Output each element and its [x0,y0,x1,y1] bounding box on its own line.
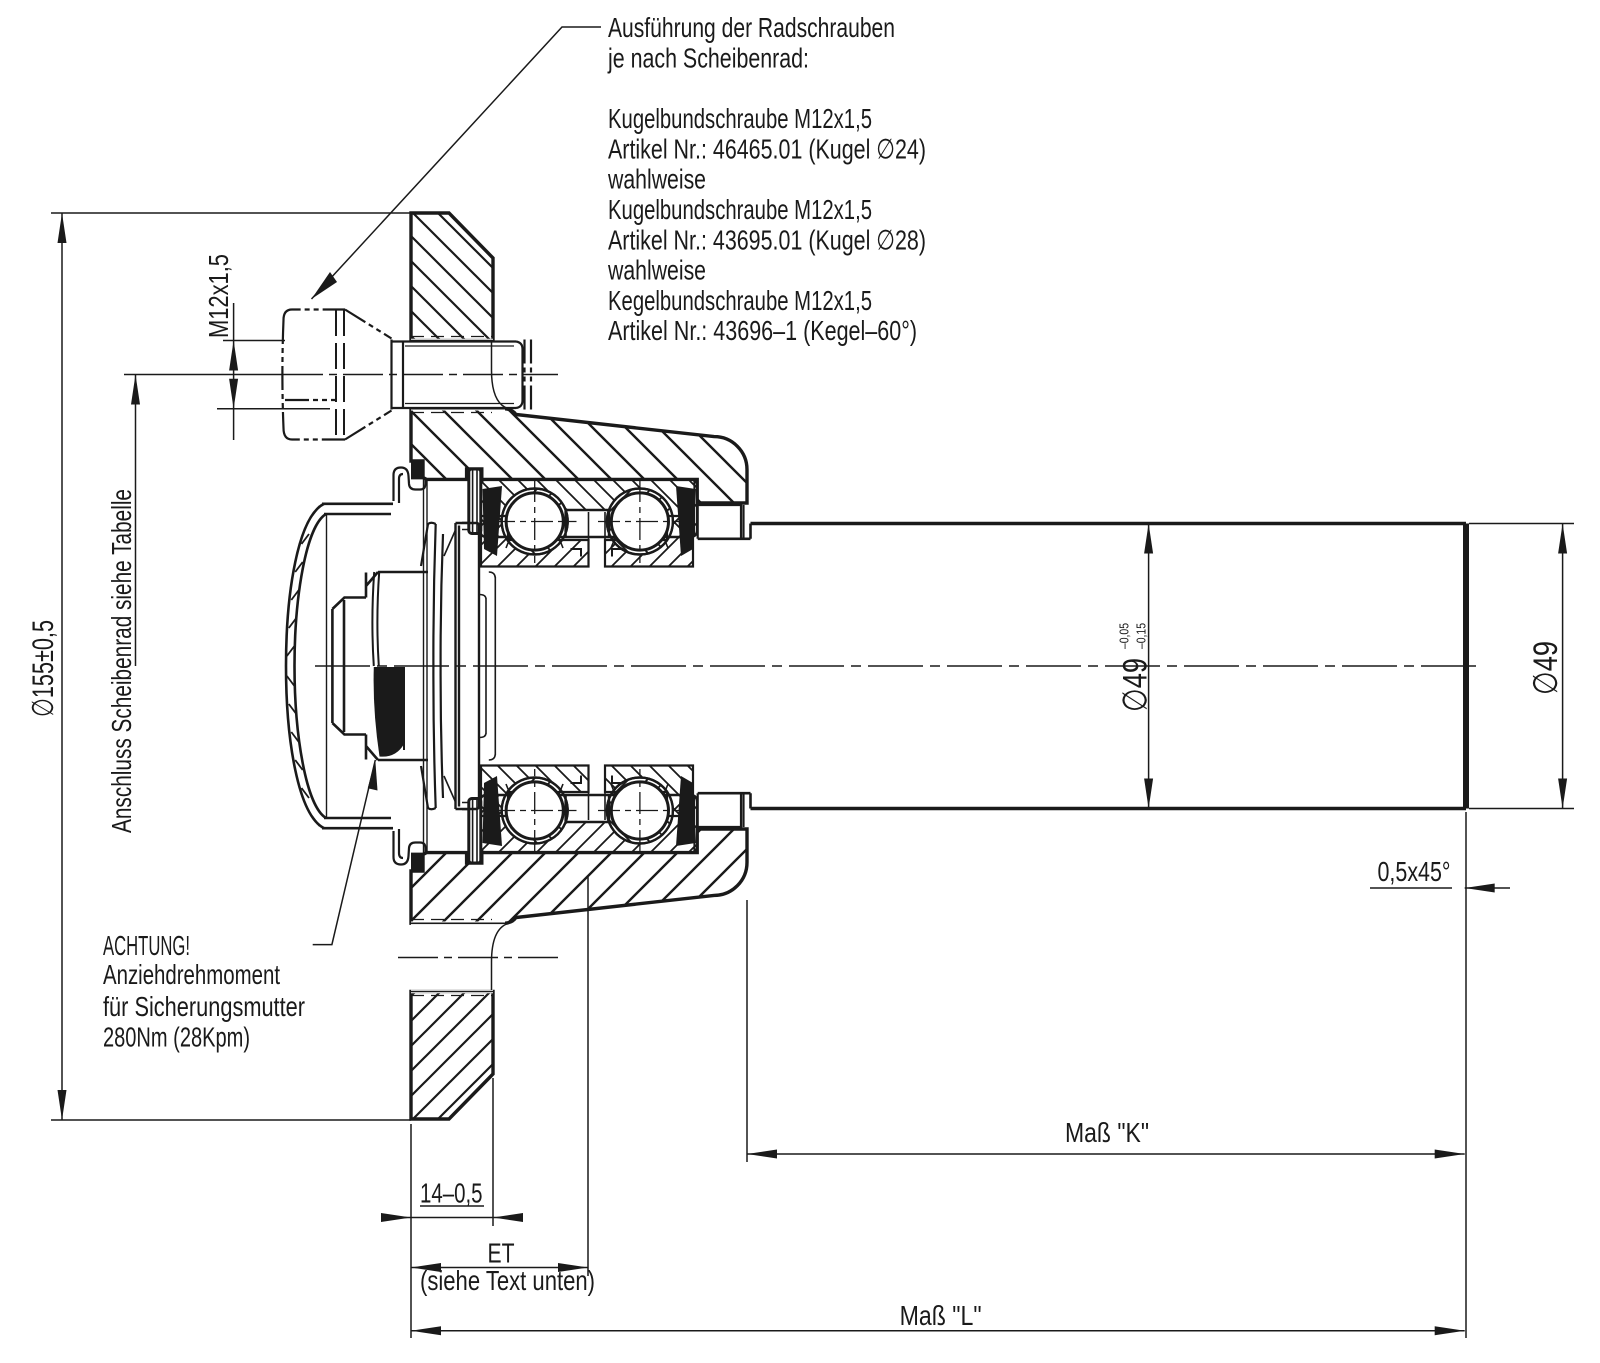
svg-text:Kegelbundschraube M12x1,5: Kegelbundschraube M12x1,5 [608,285,872,316]
svg-text:∅155±0,5: ∅155±0,5 [27,620,60,717]
svg-text:wahlweise: wahlweise [607,164,706,195]
svg-text:∅49: ∅49 [1117,658,1155,712]
svg-text:wahlweise: wahlweise [607,255,706,286]
svg-text:Anschluss Scheibenrad siehe Ta: Anschluss Scheibenrad siehe Tabelle [106,489,137,833]
svg-text:Artikel Nr.: 43695.01 (Kugel ∅: Artikel Nr.: 43695.01 (Kugel ∅28) [608,225,926,256]
svg-text:0,5x45°: 0,5x45° [1378,856,1451,887]
svg-text:für Sicherungsmutter: für Sicherungsmutter [103,991,305,1022]
svg-text:Kugelbundschraube M12x1,5: Kugelbundschraube M12x1,5 [608,103,872,134]
svg-text:je nach Scheibenrad:: je nach Scheibenrad: [607,43,809,74]
svg-text:Maß "K": Maß "K" [1065,1117,1149,1148]
svg-text:–0,15: –0,15 [1133,623,1148,649]
svg-text:14–0,5: 14–0,5 [420,1178,483,1209]
svg-text:Anziehdrehmoment: Anziehdrehmoment [103,959,280,990]
svg-text:ET: ET [488,1238,515,1269]
svg-text:280Nm (28Kpm): 280Nm (28Kpm) [103,1022,250,1053]
svg-text:Maß "L": Maß "L" [900,1300,982,1331]
svg-text:Kugelbundschraube M12x1,5: Kugelbundschraube M12x1,5 [608,194,872,225]
svg-text:(siehe Text unten): (siehe Text unten) [420,1265,595,1296]
svg-text:ACHTUNG!: ACHTUNG! [103,930,190,961]
svg-text:Artikel Nr.: 46465.01 (Kugel ∅: Artikel Nr.: 46465.01 (Kugel ∅24) [608,134,926,165]
svg-text:Artikel Nr.: 43696–1 (Kegel–60: Artikel Nr.: 43696–1 (Kegel–60°) [608,315,917,346]
svg-text:Ausführung der Radschrauben: Ausführung der Radschrauben [608,12,895,43]
svg-text:M12x1,5: M12x1,5 [203,254,234,338]
svg-text:∅49: ∅49 [1527,641,1565,695]
svg-text:–0,05: –0,05 [1116,623,1131,649]
